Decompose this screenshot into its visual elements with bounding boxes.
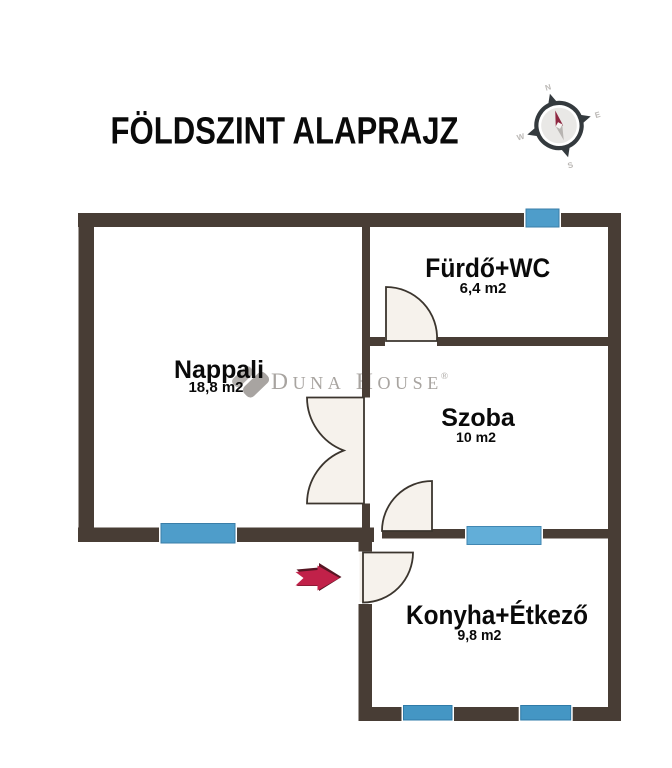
- svg-text:10 m2: 10 m2: [456, 429, 496, 445]
- svg-text:18,8 m2: 18,8 m2: [188, 379, 243, 396]
- svg-text:FÖLDSZINT ALAPRAJZ: FÖLDSZINT ALAPRAJZ: [111, 110, 459, 153]
- svg-text:6,4 m2: 6,4 m2: [460, 280, 507, 297]
- svg-text:DUNA HOUSE®: DUNA HOUSE®: [271, 369, 453, 395]
- svg-text:Szoba: Szoba: [441, 404, 516, 432]
- svg-text:Konyha+Étkező: Konyha+Étkező: [406, 599, 588, 630]
- svg-text:9,8 m2: 9,8 m2: [457, 627, 501, 644]
- svg-text:Fürdő+WC: Fürdő+WC: [425, 253, 550, 283]
